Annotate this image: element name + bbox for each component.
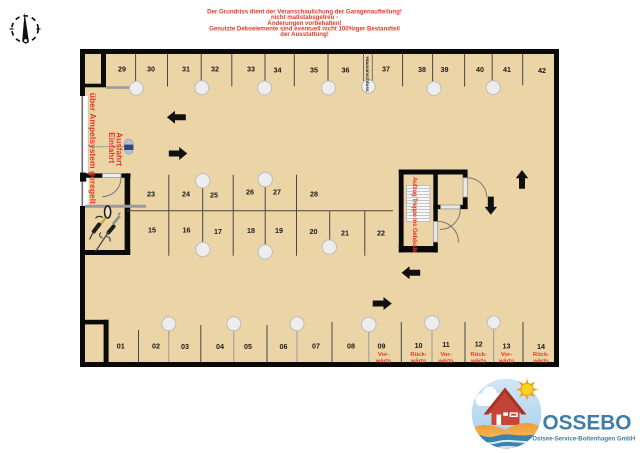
svg-text:24: 24 — [182, 190, 190, 199]
svg-text:41: 41 — [503, 65, 511, 74]
svg-text:20: 20 — [310, 227, 318, 236]
svg-text:Ausfahrt: Ausfahrt — [114, 132, 123, 166]
svg-text:22: 22 — [377, 229, 385, 238]
svg-text:17: 17 — [214, 227, 222, 236]
svg-text:Hausanschluss: Hausanschluss — [364, 57, 370, 93]
svg-text:wärts: wärts — [410, 358, 427, 364]
svg-text:37: 37 — [382, 65, 390, 74]
svg-text:Ostsee-Service-Boltenhagen Gmb: Ostsee-Service-Boltenhagen GmbH — [532, 436, 635, 443]
svg-text:18: 18 — [247, 226, 255, 235]
svg-text:wärts: wärts — [437, 358, 454, 364]
svg-text:08: 08 — [347, 341, 355, 350]
svg-text:wärts: wärts — [498, 358, 515, 364]
svg-text:14: 14 — [537, 342, 545, 351]
svg-text:Aufzug Treppe ins Gebäude: Aufzug Treppe ins Gebäude — [411, 177, 418, 253]
svg-text:30: 30 — [147, 65, 155, 74]
svg-text:09: 09 — [378, 341, 386, 350]
svg-text:40: 40 — [476, 65, 484, 74]
svg-text:29: 29 — [118, 65, 126, 74]
svg-text:11: 11 — [442, 340, 450, 349]
svg-text:27: 27 — [273, 188, 281, 197]
svg-text:39: 39 — [441, 65, 449, 74]
svg-text:Vor-: Vor- — [501, 352, 512, 358]
svg-text:36: 36 — [342, 66, 350, 75]
svg-text:10: 10 — [415, 341, 423, 350]
svg-text:Vor-: Vor- — [378, 352, 389, 358]
svg-text:16: 16 — [183, 226, 191, 235]
svg-text:13: 13 — [503, 342, 511, 351]
svg-text:15: 15 — [148, 226, 156, 235]
svg-text:wärts: wärts — [375, 358, 392, 364]
svg-text:wärts: wärts — [532, 358, 549, 364]
svg-text:32: 32 — [211, 65, 219, 74]
svg-text:01: 01 — [117, 341, 125, 350]
svg-text:38: 38 — [418, 65, 426, 74]
svg-text:23: 23 — [147, 190, 155, 199]
svg-text:Rück-: Rück- — [471, 352, 487, 358]
svg-text:34: 34 — [274, 66, 282, 75]
svg-text:31: 31 — [182, 65, 190, 74]
svg-text:12: 12 — [475, 339, 483, 348]
svg-text:über Ampelsystem geregelt: über Ampelsystem geregelt — [88, 93, 98, 204]
svg-text:wärts: wärts — [470, 358, 487, 364]
svg-text:28: 28 — [310, 190, 318, 199]
svg-text:06: 06 — [280, 342, 288, 351]
svg-text:der Ausstattung!: der Ausstattung! — [280, 31, 329, 38]
svg-text:Rück-: Rück- — [410, 352, 426, 358]
svg-text:26: 26 — [246, 188, 254, 197]
svg-text:OSSEBO: OSSEBO — [543, 412, 632, 435]
svg-text:02: 02 — [152, 341, 160, 350]
svg-text:05: 05 — [244, 342, 252, 351]
svg-text:25: 25 — [210, 191, 218, 200]
svg-text:33: 33 — [247, 65, 255, 74]
svg-text:Rück-: Rück- — [533, 352, 549, 358]
svg-text:42: 42 — [538, 66, 546, 75]
svg-text:07: 07 — [312, 341, 320, 350]
svg-text:21: 21 — [341, 229, 349, 238]
svg-text:19: 19 — [275, 226, 283, 235]
svg-text:04: 04 — [216, 342, 224, 351]
svg-text:35: 35 — [310, 66, 318, 75]
svg-text:03: 03 — [181, 342, 189, 351]
svg-text:Vor-: Vor- — [440, 352, 451, 358]
